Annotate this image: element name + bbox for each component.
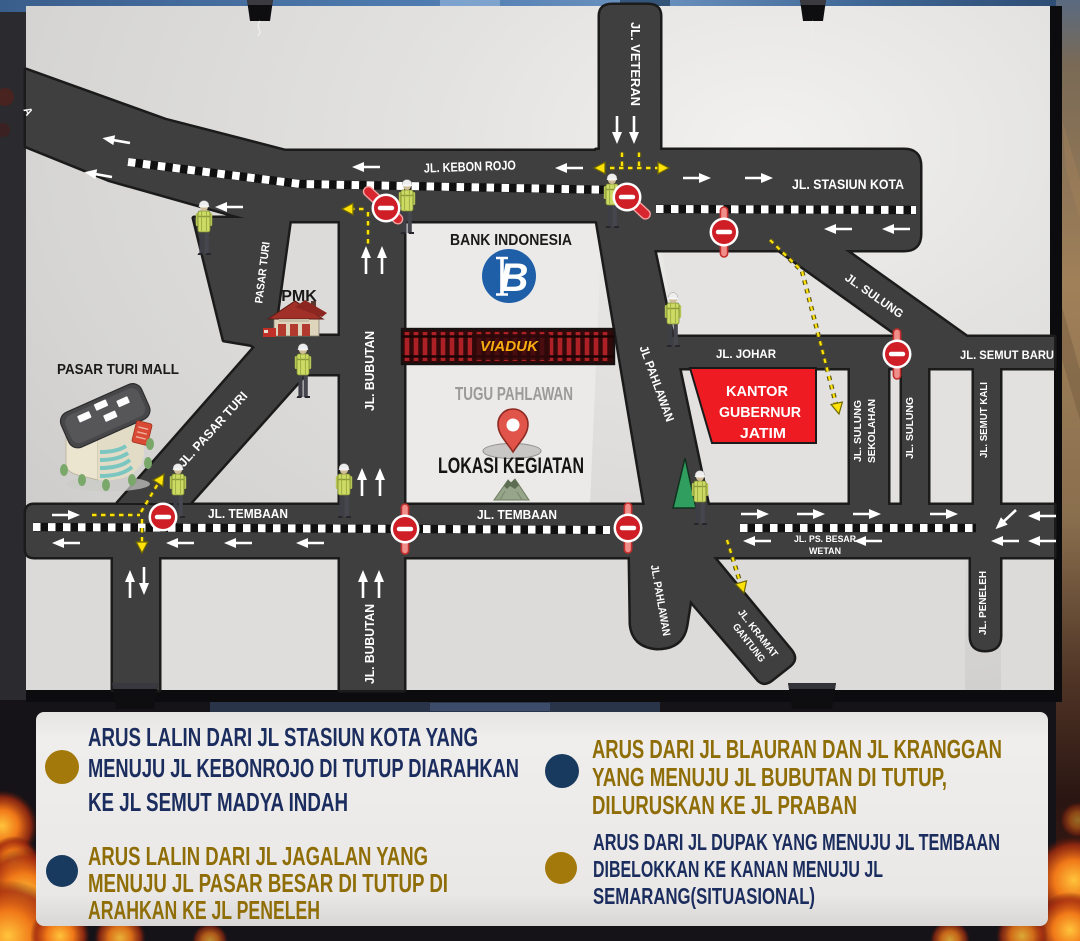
svg-text:ARAHKAN KE JL PENELEH: ARAHKAN KE JL PENELEH: [88, 895, 320, 925]
svg-text:KANTOR: KANTOR: [726, 384, 789, 400]
svg-text:JL. KEBON ROJO: JL. KEBON ROJO: [424, 157, 516, 175]
svg-text:LOKASI KEGIATAN: LOKASI KEGIATAN: [438, 453, 584, 478]
svg-text:GUBERNUR: GUBERNUR: [719, 405, 802, 421]
svg-text:PASAR TURI MALL: PASAR TURI MALL: [57, 361, 179, 378]
svg-text:JL. JOHAR: JL. JOHAR: [716, 347, 776, 361]
svg-text:DILURUSKAN KE JL PRABAN: DILURUSKAN KE JL PRABAN: [592, 790, 857, 820]
svg-text:WETAN: WETAN: [809, 546, 841, 557]
svg-text:KE JL SEMUT MADYA INDAH: KE JL SEMUT MADYA INDAH: [88, 787, 348, 817]
svg-text:JL. TEMBAAN: JL. TEMBAAN: [477, 507, 557, 522]
svg-text:JL. VETERAN: JL. VETERAN: [628, 22, 643, 106]
svg-text:JL. STASIUN KOTA: JL. STASIUN KOTA: [792, 177, 904, 192]
svg-text:JL. SULUNG: JL. SULUNG: [904, 397, 916, 459]
svg-text:MENUJU JL KEBONROJO DI TUTUP D: MENUJU JL KEBONROJO DI TUTUP DIARAHKAN: [88, 753, 519, 783]
svg-text:JL. BUBUTAN: JL. BUBUTAN: [363, 604, 377, 684]
svg-text:JL. SEMUT KALI: JL. SEMUT KALI: [978, 382, 990, 458]
svg-text:JL. PS. BESAR: JL. PS. BESAR: [794, 534, 856, 545]
svg-text:SEKOLAHAN: SEKOLAHAN: [866, 399, 878, 463]
svg-text:BANK INDONESIA: BANK INDONESIA: [450, 232, 572, 249]
svg-text:VIADUK: VIADUK: [480, 339, 540, 355]
svg-text:ARUS LALIN DARI JL JAGALAN YA: ARUS LALIN DARI JL JAGALAN YANG: [88, 841, 428, 871]
svg-text:TUGU PAHLAWAN: TUGU PAHLAWAN: [455, 383, 573, 404]
svg-text:JL. SULUNG: JL. SULUNG: [852, 400, 864, 462]
svg-text:ARUS DARI JL BLAURAN DAN JL K: ARUS DARI JL BLAURAN DAN JL KRANGGAN: [592, 734, 1002, 764]
svg-text:SEMARANG(SITUASIONAL): SEMARANG(SITUASIONAL): [593, 883, 815, 909]
svg-text:YANG MENUJU JL BUBUTAN DI TUT: YANG MENUJU JL BUBUTAN DI TUTUP,: [592, 762, 947, 792]
svg-text:ARUS LALIN DARI JL STASIUN KOT: ARUS LALIN DARI JL STASIUN KOTA YANG: [88, 722, 478, 752]
svg-text:JL. TEMBAAN: JL. TEMBAAN: [208, 506, 288, 521]
svg-text:JL. BUBUTAN: JL. BUBUTAN: [363, 331, 377, 411]
svg-text:DIBELOKKAN KE KANAN MENUJU JL: DIBELOKKAN KE KANAN MENUJU JL: [593, 856, 883, 882]
svg-text:ARUS DARI JL DUPAK YANG MENUJU: ARUS DARI JL DUPAK YANG MENUJU JL TEMBAA…: [593, 829, 1000, 855]
svg-text:MENUJU JL PASAR BESAR DI TUTU: MENUJU JL PASAR BESAR DI TUTUP DI: [88, 868, 448, 898]
svg-text:JATIM: JATIM: [740, 426, 786, 442]
svg-text:JL. PENELEH: JL. PENELEH: [977, 571, 989, 635]
svg-text:JL. SEMUT BARU: JL. SEMUT BARU: [960, 348, 1054, 362]
